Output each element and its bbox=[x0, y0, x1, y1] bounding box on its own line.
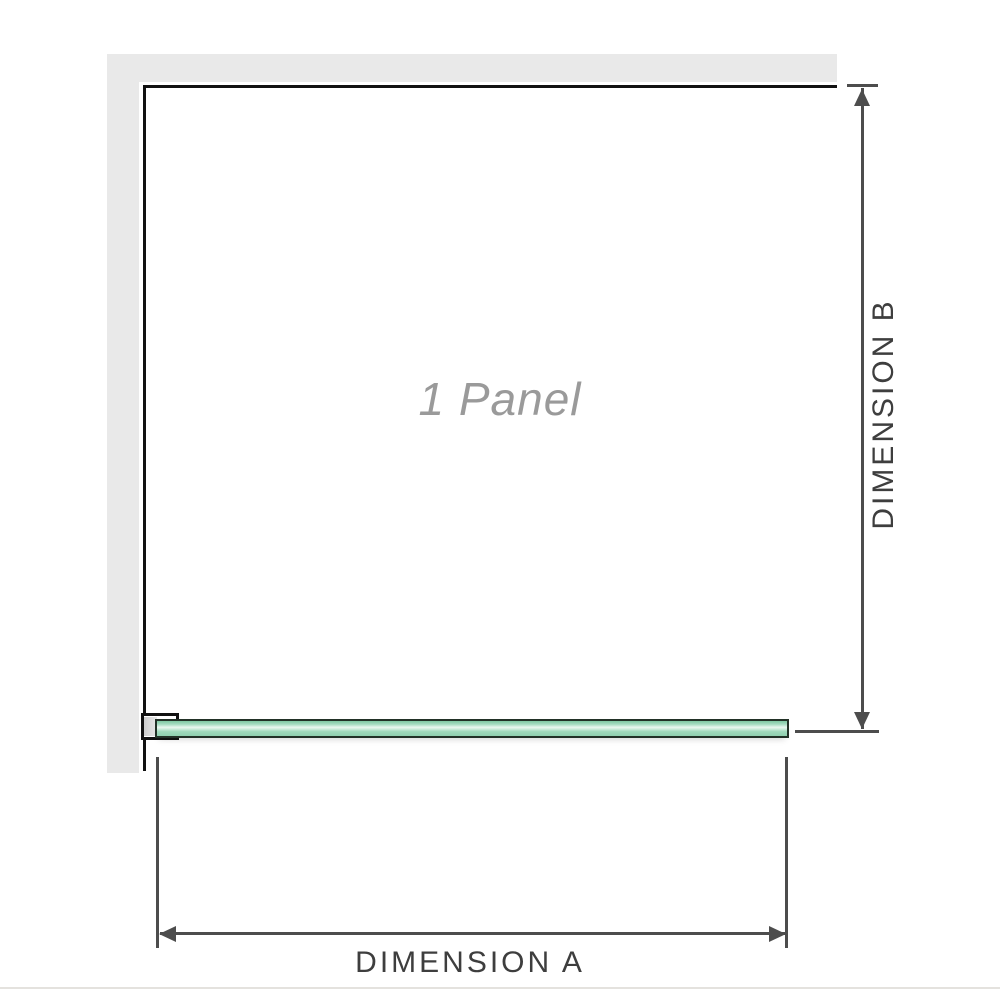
shower-panel-diagram: 1 Panel DIMENSION B DIMENSION A bbox=[0, 0, 1000, 1000]
dimension-b-line bbox=[861, 88, 864, 729]
panel-outline-top bbox=[143, 85, 837, 88]
glass-panel-bar bbox=[155, 719, 789, 738]
arrow-up-icon bbox=[854, 89, 870, 106]
dimension-a-label: DIMENSION A bbox=[355, 946, 585, 980]
dimension-b-top-tick bbox=[847, 84, 878, 87]
arrow-right-icon bbox=[769, 926, 786, 942]
wall-top bbox=[107, 54, 837, 82]
dimension-a-right-extent-line bbox=[785, 757, 788, 948]
panel-count-label: 1 Panel bbox=[418, 372, 581, 426]
panel-outline-left bbox=[143, 85, 146, 771]
dimension-b-label: DIMENSION B bbox=[867, 298, 901, 529]
arrow-down-icon bbox=[854, 712, 870, 729]
dimension-b-bottom-tick bbox=[795, 730, 879, 733]
dimension-a-left-extent-line bbox=[156, 757, 159, 948]
footer-separator-line bbox=[0, 987, 1000, 989]
wall-left bbox=[107, 54, 139, 773]
dimension-a-line bbox=[160, 932, 786, 935]
arrow-left-icon bbox=[159, 926, 176, 942]
